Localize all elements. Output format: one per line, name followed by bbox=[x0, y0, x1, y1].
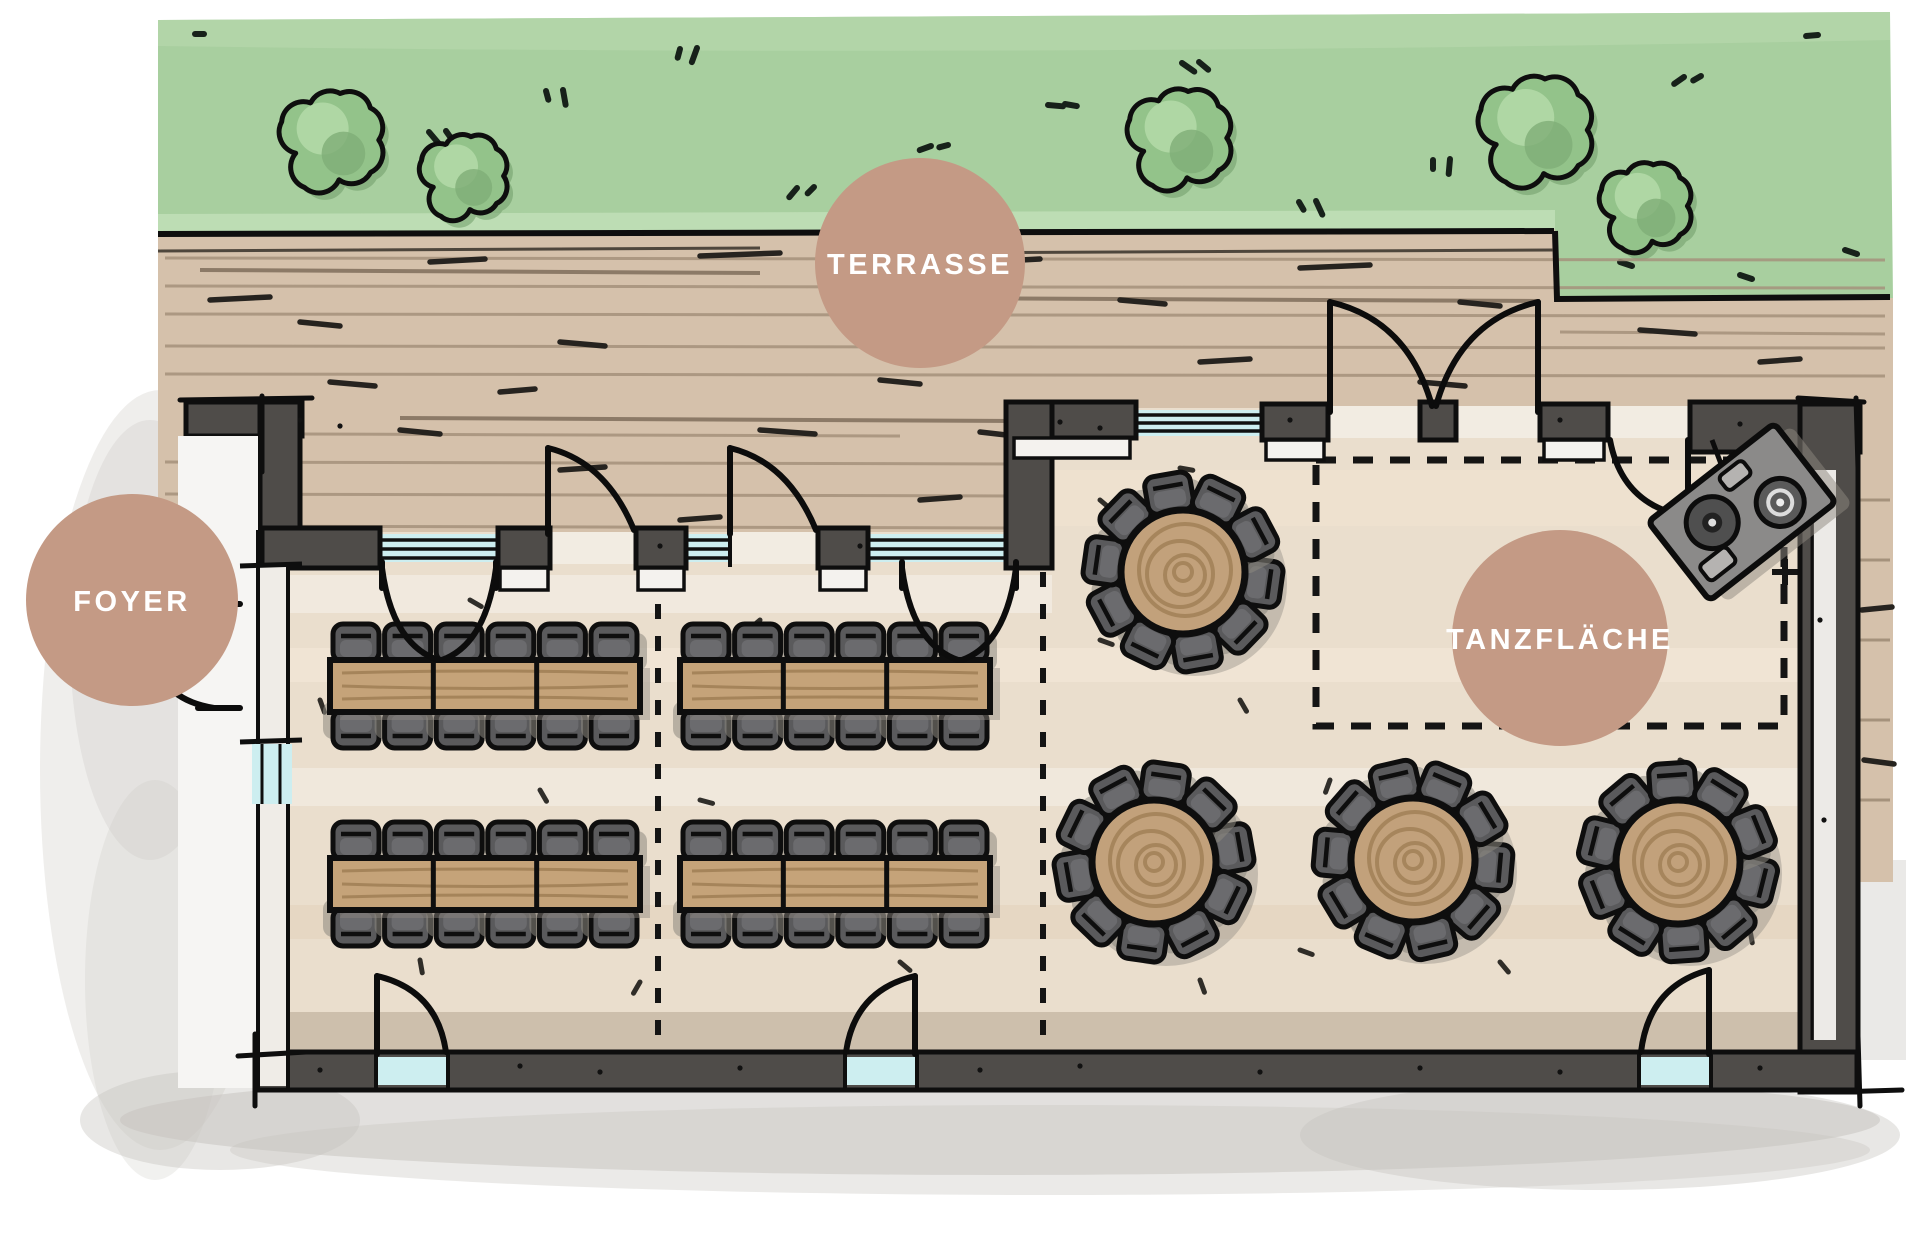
long-table bbox=[673, 624, 1000, 748]
bush-icon bbox=[279, 91, 389, 200]
bush-icon bbox=[1127, 89, 1237, 198]
door-sill bbox=[500, 568, 548, 590]
wall-segment bbox=[262, 528, 380, 568]
window-triple-line-icon bbox=[252, 744, 292, 804]
long-table bbox=[323, 624, 650, 748]
door-sill bbox=[1266, 440, 1324, 460]
terrasse-label: TERRASSE bbox=[827, 249, 1013, 281]
wall-segment bbox=[255, 1052, 1857, 1090]
door-sill bbox=[638, 568, 684, 590]
bush-icon bbox=[1599, 163, 1697, 260]
bush-icon bbox=[1478, 76, 1598, 195]
wall-segment bbox=[1262, 404, 1328, 440]
floor-plan-canvas: TERRASSE FOYER TANZFLÄCHE bbox=[0, 0, 1920, 1235]
wall-segment bbox=[498, 528, 550, 568]
tanzflaeche-label: TANZFLÄCHE bbox=[1446, 623, 1674, 656]
wall-segment bbox=[1540, 404, 1608, 440]
terrasse-badge: TERRASSE bbox=[815, 158, 1025, 368]
door-sill bbox=[1544, 440, 1604, 460]
wall-segment bbox=[1006, 402, 1052, 568]
bush-icon bbox=[419, 135, 513, 228]
door-sill bbox=[1014, 438, 1130, 458]
long-table bbox=[673, 822, 1000, 946]
long-table bbox=[323, 822, 650, 946]
foyer-badge: FOYER bbox=[26, 494, 238, 706]
foyer-label: FOYER bbox=[73, 586, 190, 618]
door-sill bbox=[820, 568, 866, 590]
